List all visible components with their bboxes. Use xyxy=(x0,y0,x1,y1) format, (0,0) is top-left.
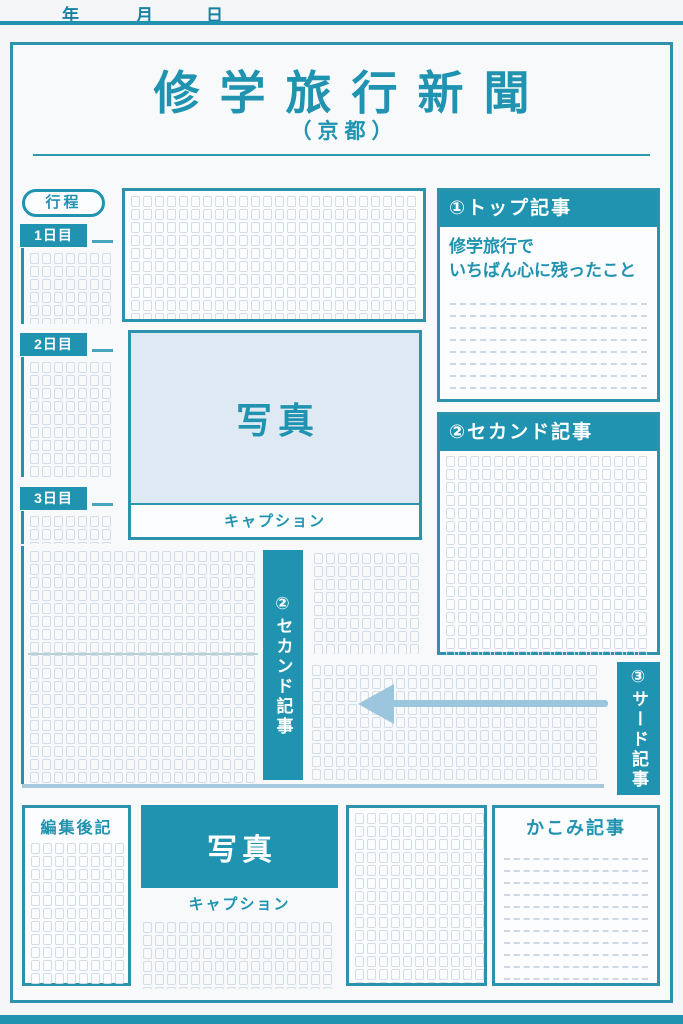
itinerary-day2-dash xyxy=(92,349,113,352)
itinerary-day2-tab: 2日目 xyxy=(20,333,87,356)
third-article-vertical-band: ③サード記事 xyxy=(617,662,660,795)
main-photo-caption: キャプション xyxy=(131,503,419,535)
bottom-photo-writing-grid xyxy=(141,917,338,989)
editors-note-box: 編集後記 xyxy=(22,805,131,986)
second-article-box: ②セカンド記事 xyxy=(437,412,660,655)
itinerary-day3-tab: 3日目 xyxy=(20,487,87,510)
boxed-article-heading: かこみ記事 xyxy=(495,808,657,840)
top-article-prompt-line1: 修学旅行で xyxy=(449,235,648,259)
top-article-writing-lines xyxy=(450,293,647,389)
bottom-photo-caption: キャプション xyxy=(141,893,338,914)
top-article-box: ①トップ記事 修学旅行で いちばん心に残ったこと xyxy=(437,188,660,402)
left-writing-grid xyxy=(21,546,260,784)
editors-note-heading: 編集後記 xyxy=(25,808,128,838)
boxed-article-box: かこみ記事 xyxy=(492,805,660,986)
itinerary-day3-dash xyxy=(92,503,113,506)
editors-note-grid xyxy=(25,838,128,986)
flow-arrow-shaft-icon xyxy=(392,700,608,707)
bottom-writing-grid-box xyxy=(346,805,487,986)
itinerary-day3-grid xyxy=(21,511,118,544)
top-writing-grid-box xyxy=(122,188,426,322)
itinerary-day1-tab: 1日目 xyxy=(20,224,87,247)
second-article-vertical-band: ②セカンド記事 xyxy=(263,550,303,780)
main-photo-box: 写真 キャプション xyxy=(128,330,422,540)
center-writing-grid-lower xyxy=(306,660,604,782)
itinerary-day1-dash xyxy=(92,240,113,243)
second-article-heading: ②セカンド記事 xyxy=(440,415,657,451)
top-rule xyxy=(0,21,683,25)
bottom-photo-box: 写真 xyxy=(141,805,338,888)
left-grid-divider xyxy=(28,653,258,655)
page-title: 修学旅行新聞 xyxy=(0,57,683,123)
second-article-vertical-label: ②セカンド記事 xyxy=(271,594,296,737)
footer-band xyxy=(0,1015,683,1024)
itinerary-day2-grid xyxy=(21,357,118,477)
masthead-rule xyxy=(33,154,650,156)
section-underline xyxy=(22,784,604,788)
itinerary-heading: 行程 xyxy=(22,189,105,217)
top-article-prompt: 修学旅行で いちばん心に残ったこと xyxy=(440,227,657,283)
second-article-grid xyxy=(440,451,657,655)
center-writing-grid-upper xyxy=(308,548,430,654)
top-article-heading: ①トップ記事 xyxy=(440,191,657,227)
top-article-prompt-line2: いちばん心に残ったこと xyxy=(449,259,648,283)
boxed-article-writing-lines xyxy=(504,848,648,980)
newspaper-template-page: 年 月 日 修学旅行新聞 （京都） 行程 1日目 2日目 3日目 写真 キャプシ… xyxy=(0,0,683,1024)
page-subtitle: （京都） xyxy=(0,115,683,145)
main-photo-placeholder: 写真 xyxy=(131,333,419,503)
flow-arrow-head-icon xyxy=(358,684,394,724)
third-article-vertical-label: ③サード記事 xyxy=(626,667,651,790)
itinerary-day1-grid xyxy=(21,248,118,324)
